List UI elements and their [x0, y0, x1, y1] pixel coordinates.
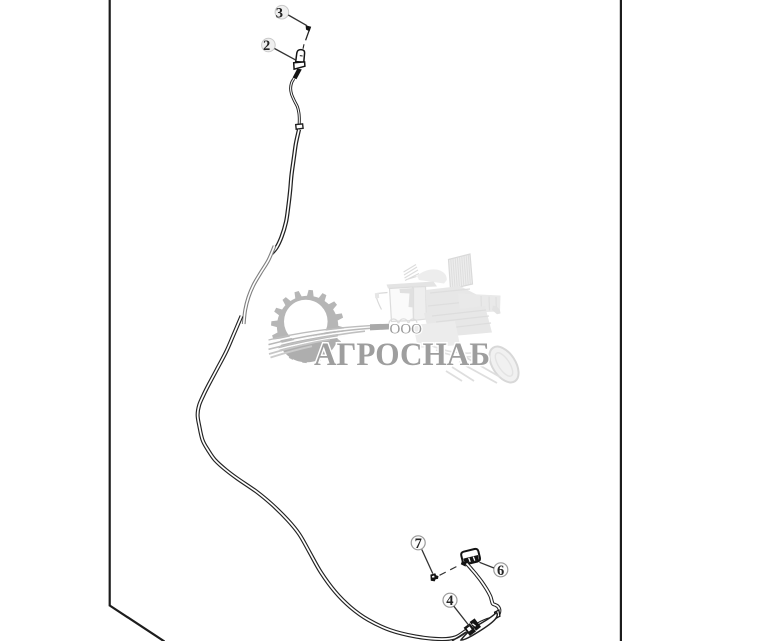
- svg-text:6: 6: [497, 563, 504, 579]
- svg-text:4: 4: [446, 593, 453, 609]
- svg-text:2: 2: [263, 38, 270, 54]
- svg-text:3: 3: [276, 5, 283, 21]
- svg-text:АГРОСНАБ: АГРОСНАБ: [314, 337, 490, 373]
- svg-text:7: 7: [415, 536, 422, 552]
- svg-text:ООО: ООО: [390, 322, 423, 338]
